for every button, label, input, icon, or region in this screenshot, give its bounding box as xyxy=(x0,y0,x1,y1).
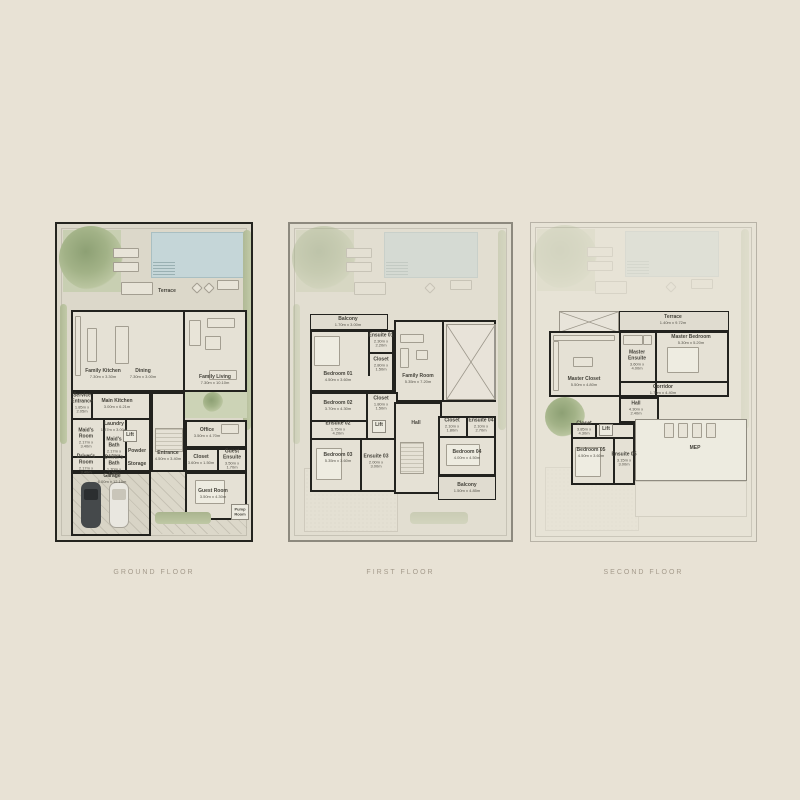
room-label-guest-room: Guest Room3.50m x 4.30m xyxy=(198,489,228,499)
room-label-bedroom-01: Bedroom 014.50m x 3.60m xyxy=(324,372,353,382)
room-dims: 1.87m x 3.00m xyxy=(101,428,127,433)
wall xyxy=(619,381,729,383)
room-label-bedroom-05: Bedroom 054.50m x 3.60m xyxy=(574,448,608,458)
room-label-main-kitchen: Main Kitchen3.00m x 6.21m xyxy=(101,399,132,409)
room-label-lift: Lift xyxy=(602,427,610,433)
sofa xyxy=(400,348,409,368)
room-name: Service Entrance xyxy=(69,394,95,406)
room-label-garage: Garage6.00m x 12.10m xyxy=(98,474,127,484)
room-dims: 4.50m x 3.60m xyxy=(324,378,353,383)
wall xyxy=(183,312,185,390)
room-dims: 5.30m x 5.20m xyxy=(671,341,710,346)
room-dims: 5.35m x 7.20m xyxy=(402,380,433,385)
room-dims: 7.30m x 3.00m xyxy=(130,375,156,380)
room-dims: 6.00m x 12.10m xyxy=(98,480,127,485)
skylight xyxy=(664,423,674,438)
car-windshield xyxy=(112,489,126,500)
room-label-laundry: Laundry1.87m x 3.00m xyxy=(101,422,127,432)
pool-steps xyxy=(627,261,649,274)
hedge xyxy=(741,229,749,429)
tree xyxy=(59,226,123,290)
room-dims: 1.85m x 2.05m xyxy=(69,405,95,414)
hedge xyxy=(410,512,468,524)
room-dims: 3.50m x 4.30m xyxy=(198,495,228,500)
room-name: Guest Ensuite xyxy=(219,450,245,462)
room-dims: 4.50m x 3.60m xyxy=(574,454,608,459)
sofa xyxy=(400,334,424,343)
room-label-drivers-room: Driver's Room2.17m x 3.40m xyxy=(73,455,99,476)
room-dims: 3.60m x 4.00m xyxy=(624,362,650,371)
car-windshield xyxy=(84,489,98,500)
room-label-entrance: Entrance4.50m x 3.40m xyxy=(155,451,181,461)
car-light xyxy=(109,482,129,528)
wall xyxy=(619,331,621,397)
room-name: Driver's Bath xyxy=(101,456,127,468)
room-name: Lift xyxy=(375,423,383,429)
outdoor-dining-table xyxy=(354,282,386,295)
bed xyxy=(667,347,699,373)
hedge xyxy=(498,230,506,430)
room-label-ensuite-04: Ensuite 042.10m x 2.70m xyxy=(468,419,494,434)
floor-title-second: SECOND FLOOR xyxy=(530,569,757,576)
skylight xyxy=(706,423,716,438)
room-dims: 1.70m x 4.40m xyxy=(650,391,676,396)
double-height-void xyxy=(446,324,496,400)
floor-title-ground: GROUND FLOOR xyxy=(55,569,253,576)
outdoor-sofa xyxy=(217,280,239,290)
room-label-bedroom-03: Bedroom 035.35m x 3.60m xyxy=(324,453,353,463)
kitchen-counter xyxy=(75,316,81,376)
tree xyxy=(292,226,356,290)
room-dims: 2.00m x 3.00m xyxy=(363,460,389,469)
courtyard-tree xyxy=(203,392,223,412)
room-dims: 1.70m x 3.00m xyxy=(335,323,361,328)
sun-lounger xyxy=(587,247,613,257)
closet-island xyxy=(573,357,593,367)
room-dims: 7.30m x 3.30m xyxy=(85,375,121,380)
room-dims: 3.85m x 4.30m xyxy=(571,427,597,436)
wardrobe xyxy=(553,335,615,341)
sun-lounger xyxy=(113,248,139,258)
room-label-dining: Dining7.30m x 3.00m xyxy=(130,369,156,379)
room-label-guest-ensuite: Guest Ensuite3.50m x 1.70m xyxy=(219,450,245,471)
wall xyxy=(571,437,635,439)
outdoor-sofa xyxy=(450,280,472,290)
room-label-closet-02: Closet1.80m x 1.50m xyxy=(368,397,394,412)
room-dims: 7.30m x 10.10m xyxy=(199,381,231,386)
room-name: Maid's Bath xyxy=(101,438,127,450)
room-label-closet: Closet3.60m x 1.50m xyxy=(188,455,214,465)
room-name: Hall xyxy=(411,421,420,427)
wardrobe xyxy=(553,341,559,391)
room-dims: 3.15m x 3.00m xyxy=(611,458,637,467)
wall xyxy=(370,352,394,354)
room-label-closet-01: Closet2.80m x 1.50m xyxy=(368,358,394,373)
second-floor-plan: Terrace1.40m x 9.72m Master Bedroom5.30m… xyxy=(530,222,757,542)
roof-void xyxy=(559,311,619,333)
wall xyxy=(438,436,496,438)
desk xyxy=(221,424,239,434)
room-dims: 2.10m x 1.80m xyxy=(439,424,465,433)
room-label-lift: Lift xyxy=(126,433,134,439)
bathtub xyxy=(623,335,643,345)
room-name: Terrace xyxy=(158,289,176,295)
room-dims: 3.50m x 1.70m xyxy=(219,461,245,470)
first-floor-plan: Balcony1.70m x 3.00m Bedroom 014.50m x 3… xyxy=(288,222,513,542)
wall xyxy=(71,418,151,420)
skylight xyxy=(678,423,688,438)
room-label-rear-balcony: Balcony1.50m x 4.85m xyxy=(454,483,480,493)
room-label-ensuite-02: Ensuite 021.75m x 4.20m xyxy=(325,422,351,437)
lower-roof xyxy=(635,481,747,517)
sun-lounger xyxy=(346,262,372,272)
room-name: Powder xyxy=(128,449,146,455)
room-label-hall: Hall4.30m x 2.40m xyxy=(623,402,649,417)
outdoor-sofa xyxy=(691,279,713,289)
lounge-chair xyxy=(424,282,435,293)
room-label-ensuite-05: Ensuite 053.15m x 3.00m xyxy=(611,453,637,468)
sofa xyxy=(189,320,201,346)
wall xyxy=(442,320,444,402)
outdoor-dining-table xyxy=(595,281,627,294)
room-label-family-living: Family Living7.30m x 10.10m xyxy=(199,375,231,385)
room-dims: 1.80m x 1.50m xyxy=(368,402,394,411)
lounge-chair xyxy=(203,282,214,293)
room-label-family-kitchen: Family Kitchen7.30m x 3.30m xyxy=(85,369,121,379)
sun-lounger xyxy=(113,262,139,272)
wall xyxy=(310,438,398,440)
room-label-closet-04: Closet2.10m x 1.80m xyxy=(439,419,465,434)
room-label-master-ensuite: Master Ensuite3.60m x 4.00m xyxy=(624,351,650,372)
room-label-master-bedroom: Master Bedroom5.30m x 5.20m xyxy=(671,335,710,345)
room-label-ensuite-01: Ensuite 012.30m x 2.20m xyxy=(368,334,394,349)
room-label-closet: Closet3.85m x 4.30m xyxy=(571,422,597,437)
kitchen-island xyxy=(87,328,97,362)
staircase xyxy=(400,442,424,474)
room-label-lift: Lift xyxy=(375,423,383,429)
floor-title-first: FIRST FLOOR xyxy=(288,569,513,576)
room-name: MEP xyxy=(690,446,701,452)
coffee-table xyxy=(416,350,428,360)
room-name: Storage xyxy=(128,462,147,468)
room-name: Master Ensuite xyxy=(624,351,650,363)
room-dims: 1.40m x 9.72m xyxy=(660,321,686,326)
sun-lounger xyxy=(346,248,372,258)
room-dims: 1.75m x 4.20m xyxy=(325,427,351,436)
room-label-terrace: Terrace1.40m x 9.72m xyxy=(660,315,686,325)
room-label-pump-room: Pump Room xyxy=(231,507,249,516)
room-label-bedroom-04: Bedroom 044.00m x 4.50m xyxy=(453,450,482,460)
room-name: Lift xyxy=(602,427,610,433)
room-label-hall: Hall xyxy=(411,421,420,427)
room-dims: 3.70m x 4.30m xyxy=(324,407,353,412)
room-name: Pump Room xyxy=(231,507,249,516)
room-dims: 2.10m x 2.70m xyxy=(468,424,494,433)
hedge xyxy=(155,512,211,524)
room-label-mep: MEP xyxy=(690,446,701,452)
floor-plan-sheet: { "floors": [ { "title": "GROUND FLOOR",… xyxy=(0,0,800,800)
room-label-ensuite-03: Ensuite 032.00m x 3.00m xyxy=(363,455,389,470)
room-dims: 2.17m x 3.40m xyxy=(73,440,99,449)
room-dims: 3.00m x 6.21m xyxy=(101,405,132,410)
coffee-table xyxy=(205,336,221,350)
lounge-chair xyxy=(191,282,202,293)
room-label-powder: Powder xyxy=(128,449,146,455)
room-name: Lift xyxy=(126,433,134,439)
sofa xyxy=(207,318,235,328)
shower xyxy=(643,335,652,345)
room-dims: 2.80m x 1.50m xyxy=(368,363,394,372)
lounge-chair xyxy=(665,281,676,292)
car-dark xyxy=(81,482,101,528)
room-label-family-room: Family Room5.35m x 7.20m xyxy=(402,374,433,384)
staircase xyxy=(155,428,183,452)
room-dims: 4.00m x 4.50m xyxy=(453,456,482,461)
room-dims: 3.50m x 4.70m xyxy=(194,434,220,439)
room-dims: 5.50m x 4.80m xyxy=(568,383,601,388)
room-label-corridor: Corridor1.70m x 4.40m xyxy=(650,385,676,395)
tree xyxy=(533,225,597,289)
outdoor-dining-table xyxy=(121,282,153,295)
room-dims: 3.60m x 1.50m xyxy=(188,461,214,466)
room-label-master-closet: Master Closet5.50m x 4.80m xyxy=(568,377,601,387)
room-label-service-entrance: Service Entrance1.85m x 2.05m xyxy=(69,394,95,415)
room-label-maids-room: Maid's Room2.17m x 3.40m xyxy=(73,429,99,450)
room-name: Driver's Room xyxy=(73,455,99,467)
room-dims: 5.35m x 3.60m xyxy=(324,459,353,464)
sun-lounger xyxy=(587,261,613,271)
hedge xyxy=(293,304,300,444)
skylight xyxy=(692,423,702,438)
room-dims: 4.30m x 2.40m xyxy=(623,407,649,416)
bed xyxy=(314,336,340,366)
room-dims: 2.30m x 2.20m xyxy=(368,339,394,348)
room-label-balcony: Balcony1.70m x 3.00m xyxy=(335,317,361,327)
ground-floor-plan: Terrace Family Kitchen7.30m x 3.30m Dini… xyxy=(55,222,253,542)
room-dims: 4.50m x 3.40m xyxy=(155,457,181,462)
room-dims: 1.50m x 4.85m xyxy=(454,489,480,494)
wall xyxy=(360,440,362,492)
room-label-storage: Storage xyxy=(128,462,147,468)
room-label-bedroom-02: Bedroom 023.70m x 4.30m xyxy=(324,401,353,411)
pool-steps xyxy=(386,262,408,275)
room-label-terrace: Terrace xyxy=(158,289,176,295)
hedge xyxy=(60,304,67,444)
room-dims: 2.17m x 3.40m xyxy=(73,466,99,475)
room-name: Maid's Room xyxy=(73,429,99,441)
room-label-office: Office3.50m x 4.70m xyxy=(194,428,220,438)
pool-steps xyxy=(153,262,175,275)
dining-table xyxy=(115,326,129,364)
